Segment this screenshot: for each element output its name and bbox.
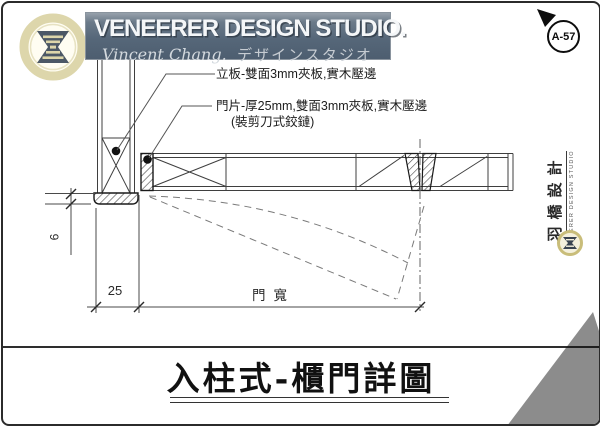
detail-ref-label: A-57 xyxy=(552,31,576,43)
studio-subtitle: Vincent Chang. デザインスタジオ xyxy=(102,44,373,65)
dim-frame-width: 25 xyxy=(99,283,131,298)
stamp-logo-icon xyxy=(556,229,584,257)
dim-edge-thickness: 6 xyxy=(47,234,61,241)
studio-name-jp: デザインスタジオ xyxy=(237,47,373,64)
door-panel-section xyxy=(153,154,513,191)
designer-name: Vincent Chang. xyxy=(102,45,227,64)
upright-hinge-dot xyxy=(112,147,121,156)
drawing-sheet: VENEERER DESIGN STUDIO. Vincent Chang. デ… xyxy=(1,1,600,426)
detail-ref-badge: A-57 xyxy=(547,20,580,53)
studio-logo-icon xyxy=(16,10,90,84)
leader-lines xyxy=(117,74,215,158)
upright-panel-note: 立板-雙面3mm夾板,實木壓邊 xyxy=(216,63,376,82)
header-banner: VENEERER DESIGN STUDIO. Vincent Chang. デ… xyxy=(85,12,391,60)
door-note-line2: (裝剪刀式鉸鏈) xyxy=(231,111,314,130)
studio-title: VENEERER DESIGN STUDIO. xyxy=(94,15,406,43)
upright-edge-band xyxy=(94,193,138,204)
title-underline xyxy=(170,397,449,403)
dim-door-width-label: 門寬 xyxy=(252,284,295,304)
upright-panel-section xyxy=(98,58,135,193)
drawing-title: 入柱式-櫃門詳圖 xyxy=(3,352,599,400)
